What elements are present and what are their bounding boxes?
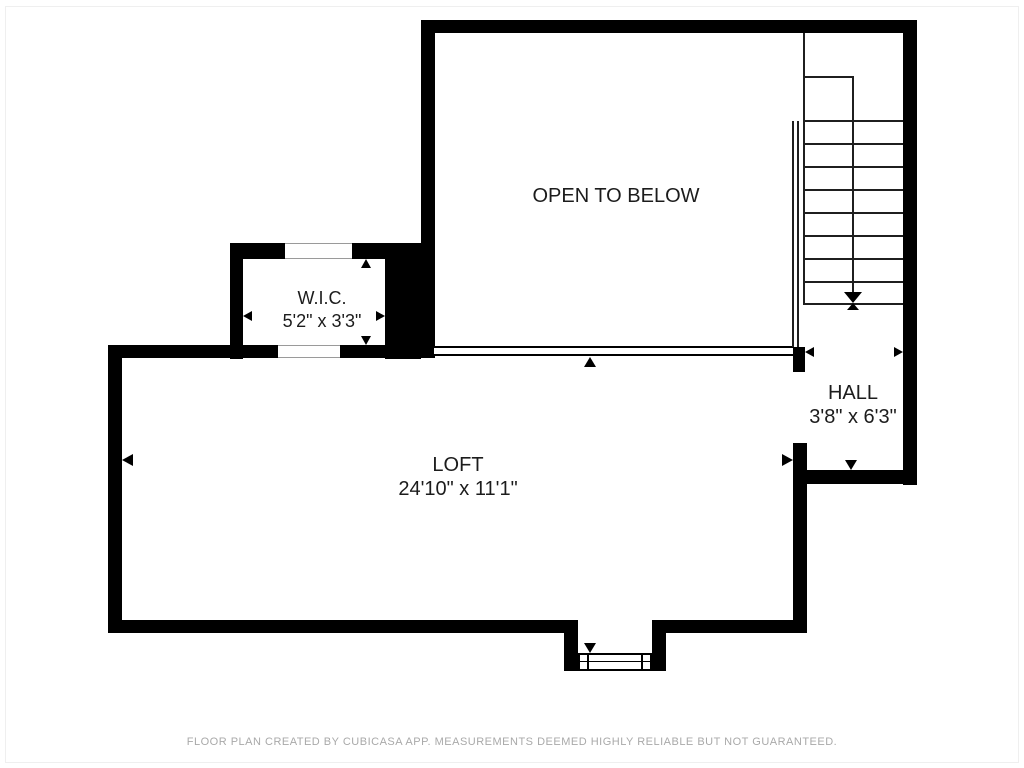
wic-measure-arrow-left-icon <box>243 311 252 321</box>
wall-wic-left <box>230 243 243 359</box>
wall-right <box>903 20 917 485</box>
wall-loft-left <box>108 345 122 633</box>
stair-tread <box>803 166 903 168</box>
hall-dimensions: 3'8" x 6'3" <box>809 405 896 429</box>
wic-top-opening <box>285 243 352 259</box>
wic-label: W.I.C. 5'2" x 3'3" <box>283 287 362 333</box>
wic-name: W.I.C. <box>283 287 362 310</box>
wall-loft-top <box>108 345 278 358</box>
openbelow-railing <box>434 346 793 356</box>
wall-bay-right-stub <box>652 633 666 671</box>
hall-name: HALL <box>809 381 896 405</box>
loft-measure-arrow-left-icon <box>122 454 133 466</box>
stair-tread <box>803 120 903 122</box>
wall-openbelow-left <box>421 20 435 358</box>
window-midline <box>580 661 650 662</box>
wall-loft-right <box>793 443 807 633</box>
wall-loft-bottom-right <box>652 620 807 633</box>
wall-bay-left-stub <box>564 633 578 671</box>
hall-measure-arrow-up-icon <box>847 303 859 310</box>
loft-label: LOFT 24'10" x 11'1" <box>398 453 517 501</box>
stair-tread <box>803 235 903 237</box>
hall-label: HALL 3'8" x 6'3" <box>809 381 896 429</box>
loft-dimensions: 24'10" x 11'1" <box>398 477 517 501</box>
wall-hall-left-stub <box>793 347 805 372</box>
stair-tread <box>803 189 903 191</box>
wall-wic-bottom-right <box>340 345 435 358</box>
stair-tread <box>803 258 903 260</box>
stair-tread <box>803 143 903 145</box>
window-post-left <box>587 655 589 669</box>
open-to-below-label: OPEN TO BELOW <box>532 184 699 208</box>
wic-bottom-opening <box>278 345 340 358</box>
loft-measure-arrow-right-icon <box>782 454 793 466</box>
stair-tread <box>803 281 903 283</box>
wall-loft-bottom-left <box>108 620 578 633</box>
wall-wic-top-left <box>230 243 285 259</box>
open-to-below-name: OPEN TO BELOW <box>532 184 699 208</box>
wic-dimensions: 5'2" x 3'3" <box>283 310 362 333</box>
window-post-right <box>641 655 643 669</box>
stair-left-edge <box>803 33 805 303</box>
loft-measure-arrow-down-icon <box>584 643 596 653</box>
stair-direction-arrow-icon <box>844 292 862 303</box>
hall-measure-arrow-right-icon <box>894 347 903 357</box>
hall-measure-arrow-down-icon <box>845 460 857 470</box>
footer-disclaimer: FLOOR PLAN CREATED BY CUBICASA APP. MEAS… <box>0 736 1024 748</box>
floor-plan: OPEN TO BELOW W.I.C. 5'2" x 3'3" LOFT 24… <box>0 0 1024 768</box>
stair-landing-line <box>803 76 854 78</box>
loft-measure-arrow-up-icon <box>584 357 596 367</box>
hall-measure-arrow-left-icon <box>805 347 814 357</box>
stair-tread <box>803 212 903 214</box>
stairwell-opening-band <box>792 121 799 347</box>
wall-top <box>421 20 917 33</box>
wic-measure-arrow-down-icon <box>361 336 371 345</box>
loft-window <box>578 653 652 671</box>
wic-measure-arrow-right-icon <box>376 311 385 321</box>
wall-wic-right-block <box>385 243 421 359</box>
loft-name: LOFT <box>398 453 517 477</box>
wic-measure-arrow-up-icon <box>361 259 371 268</box>
wall-hall-bottom <box>807 470 917 484</box>
